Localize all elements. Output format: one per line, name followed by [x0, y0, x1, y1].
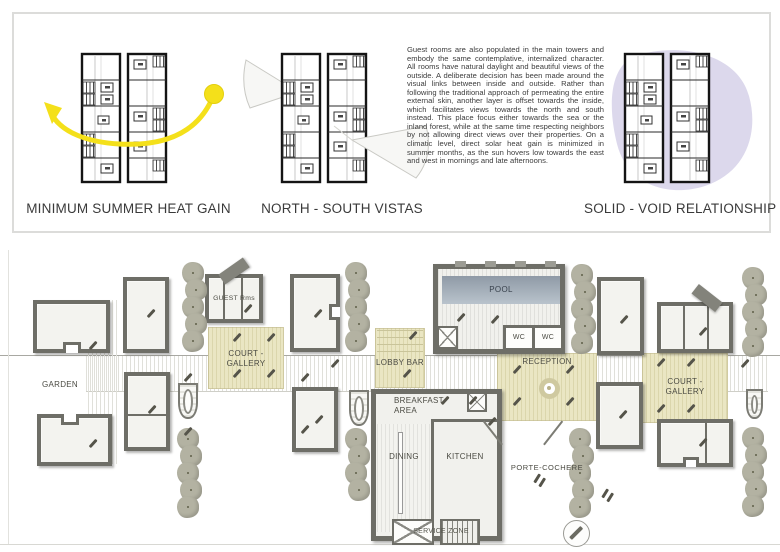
room-divider [705, 423, 707, 463]
garden-label: GARDEN [30, 380, 90, 390]
concept-panel: MINIMUM SUMMER HEAT GAIN NORTH - SOUTH V… [12, 12, 771, 233]
plan-mark [538, 477, 545, 487]
guest-rooms-label: GUEST Rms [209, 294, 259, 304]
reception-court: RECEPTION [497, 353, 597, 421]
court-gallery-left-label: COURT - [208, 349, 284, 359]
room-divider [683, 306, 685, 349]
parapet-column [455, 261, 466, 267]
compass-icon [563, 520, 590, 547]
tree-icon [348, 479, 370, 501]
sun-icon [205, 85, 224, 104]
parapet-column [485, 261, 496, 267]
tree-icon [177, 496, 199, 518]
tree-icon [569, 496, 591, 518]
summer-heat-gain-diagram [24, 44, 236, 196]
dining-label: DINING [377, 452, 431, 462]
compass-needle [569, 526, 583, 540]
entry-notch [683, 457, 699, 467]
spiral-stair [349, 390, 369, 426]
dining-room [377, 424, 431, 532]
solid-void-diagram [587, 44, 777, 196]
wc-left-label: WC [506, 333, 532, 343]
diagram-label-solid-void: SOLID - VOID RELATIONSHIP [584, 201, 776, 219]
entry-notch [63, 342, 81, 353]
spiral-stair [178, 383, 198, 419]
fountain-icon [539, 378, 560, 399]
lobby-bar-court: LOBBY BAR [375, 328, 425, 388]
pool: POOL [442, 276, 560, 304]
description-text: Guest rooms are also populated in the ma… [407, 46, 604, 166]
room-divider [128, 414, 166, 416]
wc-room-left: WC [506, 328, 532, 348]
villa [657, 419, 733, 467]
villa [33, 300, 110, 353]
wc-room-right: WC [535, 328, 561, 348]
porte-cochere-label: PORTE-COCHERE [492, 463, 602, 473]
entry-notch [61, 414, 79, 425]
parapet-column [515, 261, 526, 267]
tree-icon [742, 495, 764, 517]
breakfast-area-label: BREAKFAST AREA [394, 396, 450, 415]
kitchen-wall [431, 419, 434, 532]
entry-notch [329, 304, 340, 320]
diagram-label-summer-heat: MINIMUM SUMMER HEAT GAIN [26, 201, 231, 219]
court-gallery-right: COURT - GALLERY [642, 353, 728, 423]
villa [37, 414, 112, 466]
parapet-column [545, 261, 556, 267]
diagram-label-vistas: NORTH - SOUTH VISTAS [242, 201, 442, 219]
kitchen-label: KITCHEN [434, 452, 496, 462]
villa [597, 277, 644, 355]
plan-mark [606, 492, 613, 502]
villa [292, 387, 338, 452]
tree-icon [571, 332, 593, 354]
service-zone-label: SERVICE ZONE [391, 527, 491, 537]
architectural-sheet: MINIMUM SUMMER HEAT GAIN NORTH - SOUTH V… [0, 0, 780, 552]
wc-right-label: WC [535, 333, 561, 343]
entrance-arrow [543, 420, 563, 445]
pool-label: POOL [442, 285, 560, 295]
tower-plan-sketch [82, 54, 166, 182]
bar-counter [398, 432, 403, 514]
sheet-edge-line [0, 544, 780, 545]
reception-label: RECEPTION [497, 357, 597, 367]
sheet-edge-line [8, 250, 9, 544]
villa [657, 302, 733, 353]
stair-core [437, 326, 458, 349]
court-gallery-right-label: COURT - [642, 377, 728, 387]
tree-icon [182, 330, 204, 352]
tree-icon [345, 330, 367, 352]
spiral-stair [746, 389, 763, 419]
kitchen-wall [431, 419, 497, 422]
tree-icon [742, 335, 764, 357]
tower-plan-sketch [282, 54, 366, 182]
lobby-bar-label: LOBBY BAR [369, 358, 431, 368]
